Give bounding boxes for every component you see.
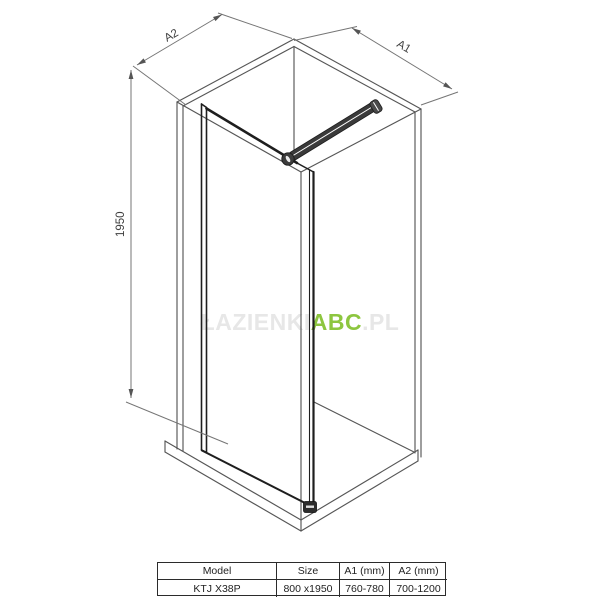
- dimension-labels: A2 A1 1950: [115, 27, 413, 237]
- spec-table-header-a2: A2 (mm): [390, 563, 447, 580]
- tray-edge: [301, 461, 418, 531]
- spec-table-cell-a1: 760-780: [340, 580, 390, 597]
- dim-label-a1: A1: [394, 38, 412, 55]
- dim-a2-line: [137, 15, 222, 66]
- glass-bottom-edge: [202, 451, 307, 505]
- spec-table-header-model: Model: [158, 563, 277, 580]
- room-wireframe: [177, 39, 421, 519]
- arrowhead: [136, 58, 146, 67]
- technical-drawing-page: ŁAZIENKIABC.PL: [0, 0, 600, 600]
- glass-foot-highlight: [306, 506, 314, 508]
- spec-table: Model Size A1 (mm) A2 (mm) KTJ X38P 800 …: [157, 562, 446, 596]
- arrowhead: [213, 12, 223, 21]
- glass-foot: [304, 502, 317, 513]
- spec-table-header-size: Size: [277, 563, 340, 580]
- wall-profile: [202, 104, 207, 453]
- dim-extension: [133, 66, 186, 105]
- dim-extension: [218, 13, 292, 39]
- room-edge: [177, 39, 294, 102]
- spec-table-cell-size: 800 x1950: [277, 580, 340, 597]
- arrowhead: [129, 389, 134, 398]
- dimension-lines: [126, 13, 458, 444]
- spec-table-header-a1: A1 (mm): [340, 563, 390, 580]
- spec-table-cell-model: KTJ X38P: [158, 580, 277, 597]
- tray-edge: [301, 450, 418, 520]
- dim-extension: [421, 92, 458, 105]
- room-edge: [183, 47, 294, 107]
- arrowhead: [129, 70, 134, 79]
- wall-base-edge: [314, 402, 414, 452]
- spec-table-cell-a2: 700-1200: [390, 580, 447, 597]
- glass-panel: [202, 109, 314, 505]
- dim-label-a2: A2: [163, 27, 181, 44]
- dim-extension: [294, 27, 357, 41]
- tray-edge: [165, 441, 301, 520]
- arrowhead: [443, 82, 453, 91]
- room-edge: [294, 47, 415, 113]
- floor-tray: [165, 441, 418, 531]
- bar-highlight: [292, 106, 375, 157]
- shower-enclosure-drawing: A2 A1 1950: [0, 0, 600, 600]
- dim-label-height: 1950: [115, 211, 127, 237]
